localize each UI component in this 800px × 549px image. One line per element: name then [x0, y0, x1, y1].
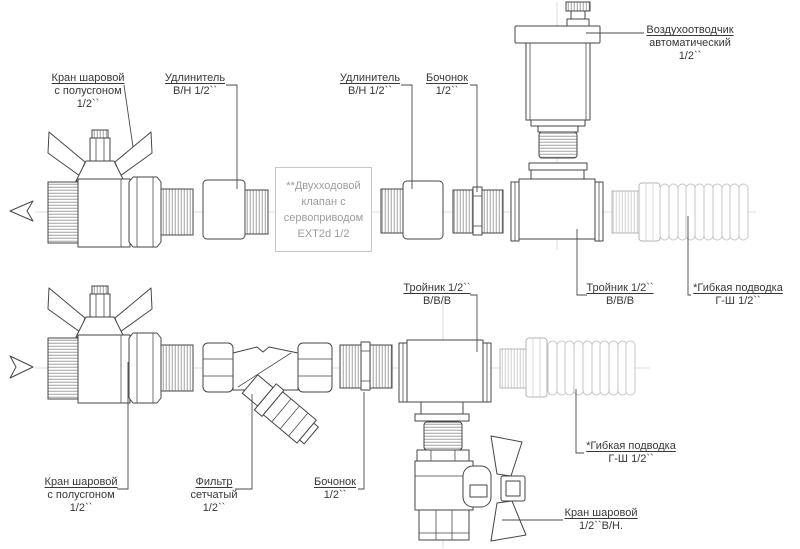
- ball-valve-vn-label: Кран шаровой 1/2``В/Н.: [553, 507, 649, 533]
- air-vent-label: Воздухоотводчик автоматический 1/2``: [635, 24, 745, 63]
- flex-hose-top-drawing: [612, 183, 748, 241]
- strainer-label: Фильтр сетчатый 1/2``: [178, 476, 250, 515]
- extension-left-drawing: [203, 180, 268, 239]
- flow-arrow-left-icon: [10, 201, 33, 221]
- extension-left-label: Удлинитель В/Н 1/2``: [155, 72, 235, 98]
- barrel-nipple-top-label: Бочонок 1/2``: [415, 72, 479, 98]
- ball-valve-bottom-drawing: [48, 286, 193, 403]
- ball-valve-top-label: Кран шаровой с полусгоном 1/2``: [36, 72, 140, 111]
- flow-arrow-right-icon: [10, 356, 33, 378]
- flex-hose-bottom-label: *Гибкая подводка Г-Ш 1/2``: [579, 440, 683, 466]
- barrel-nipple-bottom-label: Бочонок 1/2``: [303, 476, 367, 502]
- barrel-nipple-bottom-drawing: [340, 342, 392, 390]
- ball-valve-top-drawing: [48, 130, 193, 247]
- flex-hose-bottom-drawing: [500, 338, 635, 397]
- strainer-drawing: [203, 343, 332, 448]
- two-way-valve-box: **Двухходовой клапан с сервоприводом EXT…: [275, 167, 372, 252]
- assembly-diagram: Кран шаровой с полусгоном 1/2`` Удлините…: [0, 0, 800, 549]
- flex-hose-top-label: *Гибкая подводка Г-Ш 1/2``: [686, 282, 790, 308]
- tee-bottom-drawing: [399, 340, 491, 421]
- tee-top-drawing: [511, 163, 603, 241]
- tee-top-label: Тройник 1/2`` В/В/В: [582, 282, 658, 308]
- extension-right-label: Удлинитель В/Н 1/2``: [330, 72, 410, 98]
- barrel-nipple-top-drawing: [453, 187, 503, 235]
- vertical-ball-valve-drawing: [415, 422, 526, 541]
- tee-bottom-label: Тройник 1/2`` В/В/В: [399, 282, 475, 308]
- extension-right-drawing: [381, 181, 443, 239]
- ball-valve-bottom-label: Кран шаровой с полусгоном 1/2``: [29, 476, 133, 515]
